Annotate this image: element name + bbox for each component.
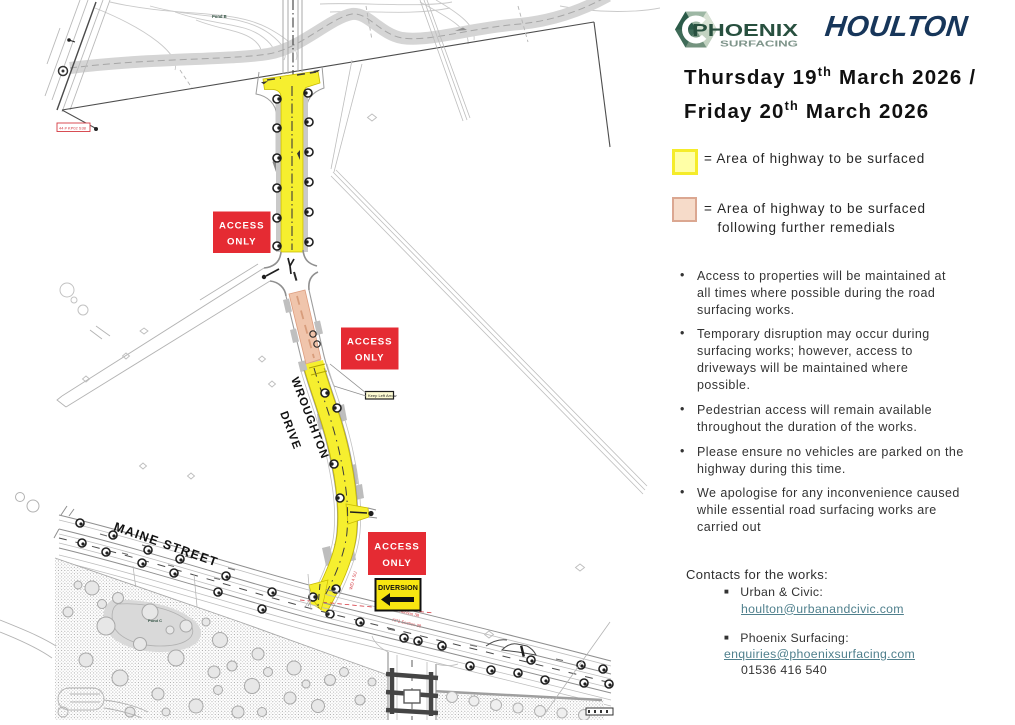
svg-text:Keep Left Arrow: Keep Left Arrow	[368, 393, 397, 398]
svg-text:Pond C: Pond C	[148, 618, 162, 623]
svg-text:ACCESS: ACCESS	[347, 337, 392, 348]
svg-text:ACCESS: ACCESS	[219, 221, 264, 232]
svg-text:PHOENIX: PHOENIX	[692, 20, 798, 40]
svg-text:Pond B: Pond B	[212, 14, 227, 19]
svg-text:ONLY: ONLY	[382, 558, 411, 569]
svg-text:DIVERSION: DIVERSION	[378, 584, 418, 592]
svg-text:44 # KP02 S38: 44 # KP02 S38	[59, 126, 87, 131]
svg-text:ONLY: ONLY	[227, 237, 256, 248]
svg-text:SURFACING: SURFACING	[720, 39, 798, 49]
svg-text:ACCESS: ACCESS	[374, 542, 419, 553]
svg-text:ONLY: ONLY	[355, 353, 384, 364]
